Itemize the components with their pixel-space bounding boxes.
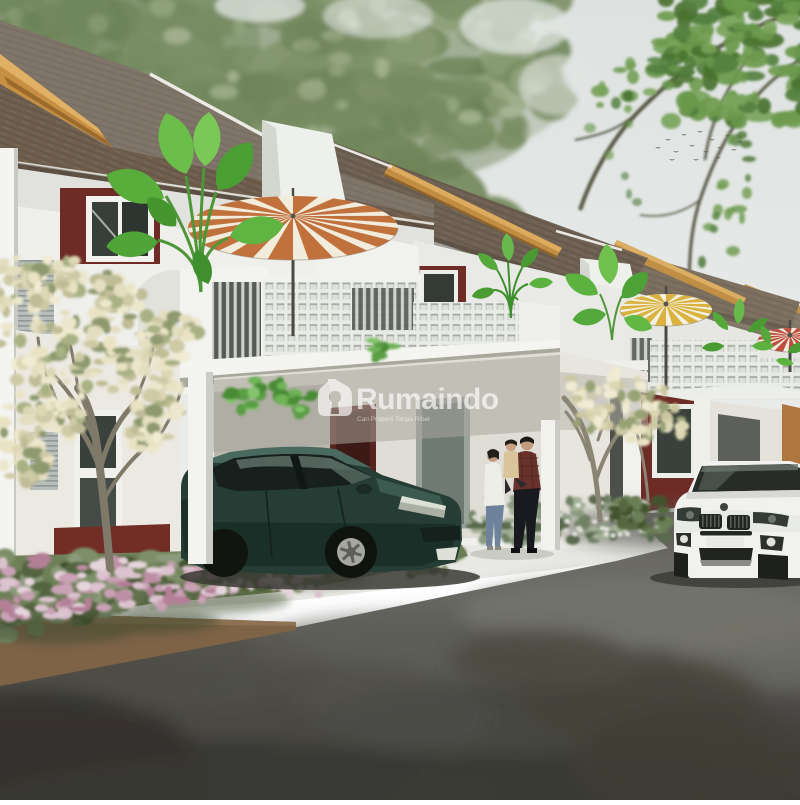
svg-text:Cari Properti Tanpa Ribet: Cari Properti Tanpa Ribet	[357, 416, 430, 423]
svg-text:Rumaindo: Rumaindo	[356, 383, 499, 416]
